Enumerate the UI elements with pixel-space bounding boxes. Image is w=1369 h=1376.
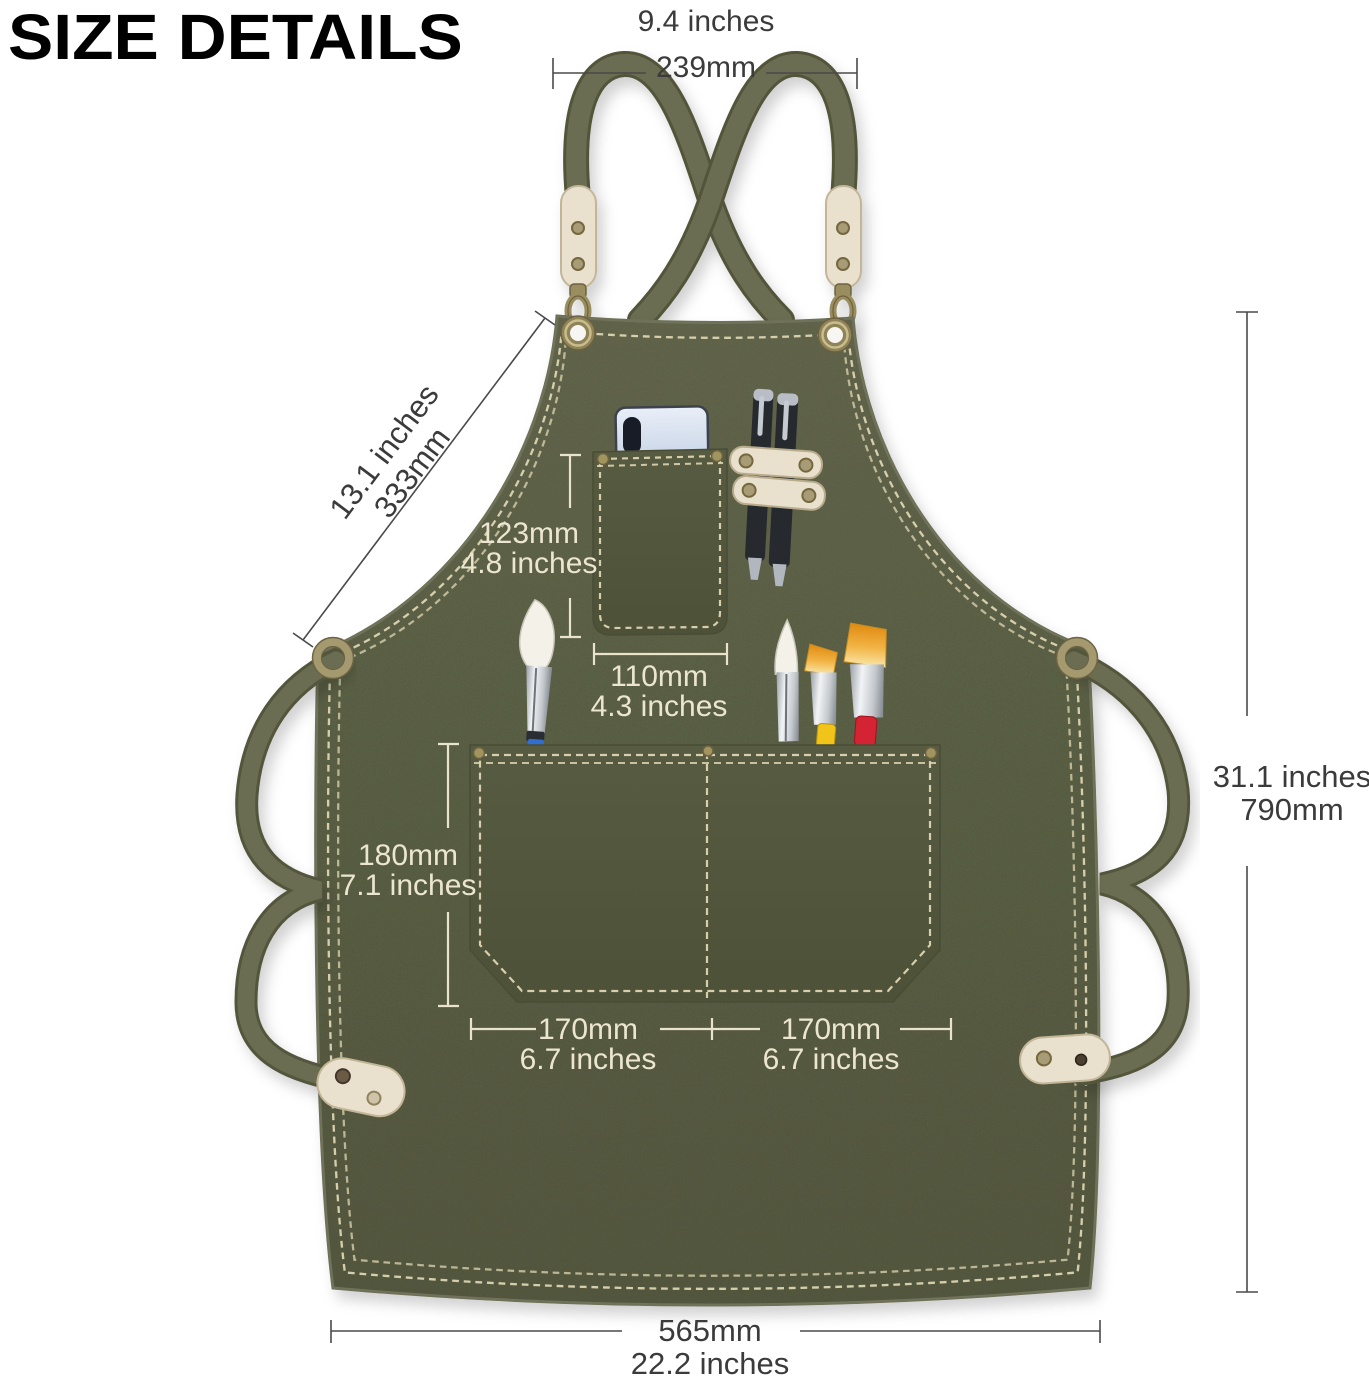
rivet (837, 258, 849, 270)
chest-pocket (593, 449, 727, 635)
label-line: 110mm (591, 662, 728, 692)
label-line: 239mm (638, 52, 775, 84)
size-details-diagram: SIZE DETAILS 9.4 inches 239mm 13.1 inche… (0, 0, 1369, 1376)
phone-camera (623, 417, 641, 454)
rivet (712, 451, 723, 462)
label-line: 7.1 inches (340, 871, 477, 901)
page-title: SIZE DETAILS (8, 0, 463, 74)
label-line: 123mm (461, 519, 598, 549)
label-neck-width: 9.4 inches 239mm (638, 6, 775, 84)
rivet (598, 454, 609, 465)
leather-tab-left (561, 186, 596, 288)
rivet (926, 748, 937, 759)
label-line: 6.7 inches (763, 1045, 900, 1075)
pen-holder (729, 446, 826, 511)
label-line: 4.3 inches (591, 692, 728, 722)
label-line: 565mm (631, 1314, 790, 1347)
label-line: 22.2 inches (631, 1347, 790, 1376)
leather-tab-right (826, 186, 861, 288)
label-main-pocket-height: 180mm 7.1 inches (340, 841, 477, 901)
label-line: 790mm (1213, 793, 1369, 826)
label-line: 31.1 inches (1213, 760, 1369, 793)
label-chest-pocket-width: 110mm 4.3 inches (591, 662, 728, 722)
label-chest-pocket-height: 123mm 4.8 inches (461, 519, 598, 579)
rivet (703, 746, 713, 756)
label-main-pocket-left: 170mm 6.7 inches (520, 1015, 657, 1075)
main-pocket (470, 745, 940, 1002)
label-bottom-width: 565mm 22.2 inches (631, 1314, 790, 1376)
label-main-pocket-right: 170mm 6.7 inches (763, 1015, 900, 1075)
rivet (837, 222, 849, 234)
grommet-bib-left (561, 316, 595, 350)
label-line: 180mm (340, 841, 477, 871)
label-line: 170mm (763, 1015, 900, 1045)
label-line: 170mm (520, 1015, 657, 1045)
leather-patch-right (1019, 1033, 1112, 1085)
grommet-bib-right (818, 318, 852, 352)
rivet (474, 748, 485, 759)
rivet (572, 258, 584, 270)
label-line: 6.7 inches (520, 1045, 657, 1075)
label-line: 4.8 inches (461, 549, 598, 579)
pen-holder-strap (729, 446, 823, 479)
label-line: 9.4 inches (638, 6, 775, 38)
rivet (572, 222, 584, 234)
shoulder-straps (561, 64, 861, 326)
label-total-height: 31.1 inches 790mm (1213, 760, 1369, 826)
